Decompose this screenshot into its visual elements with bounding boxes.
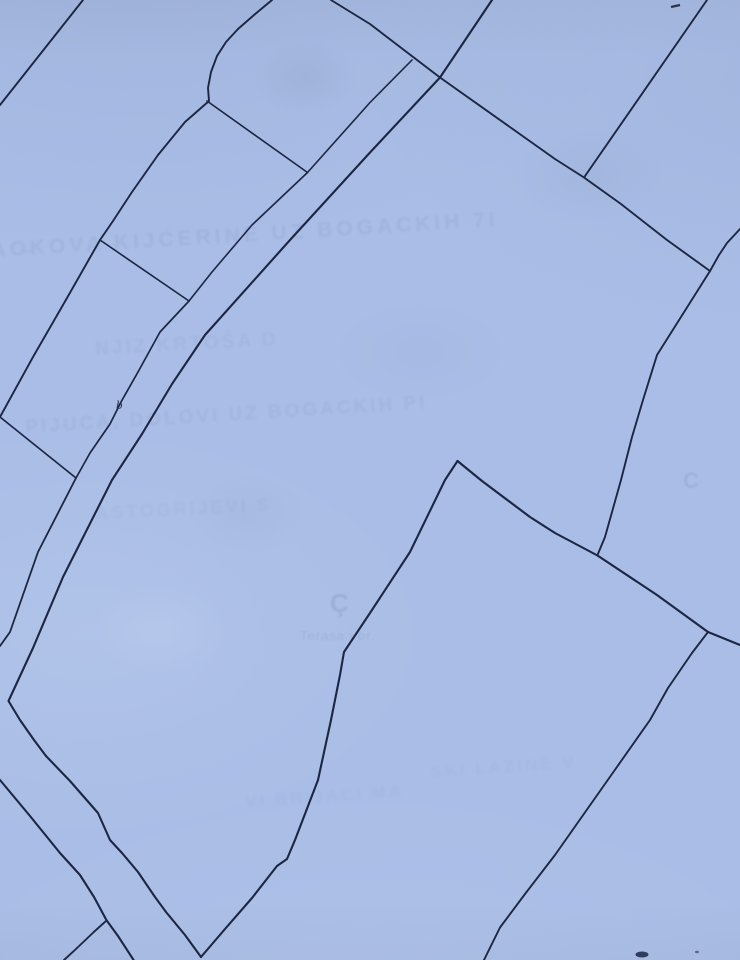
svg-text:b: b [116, 397, 123, 412]
